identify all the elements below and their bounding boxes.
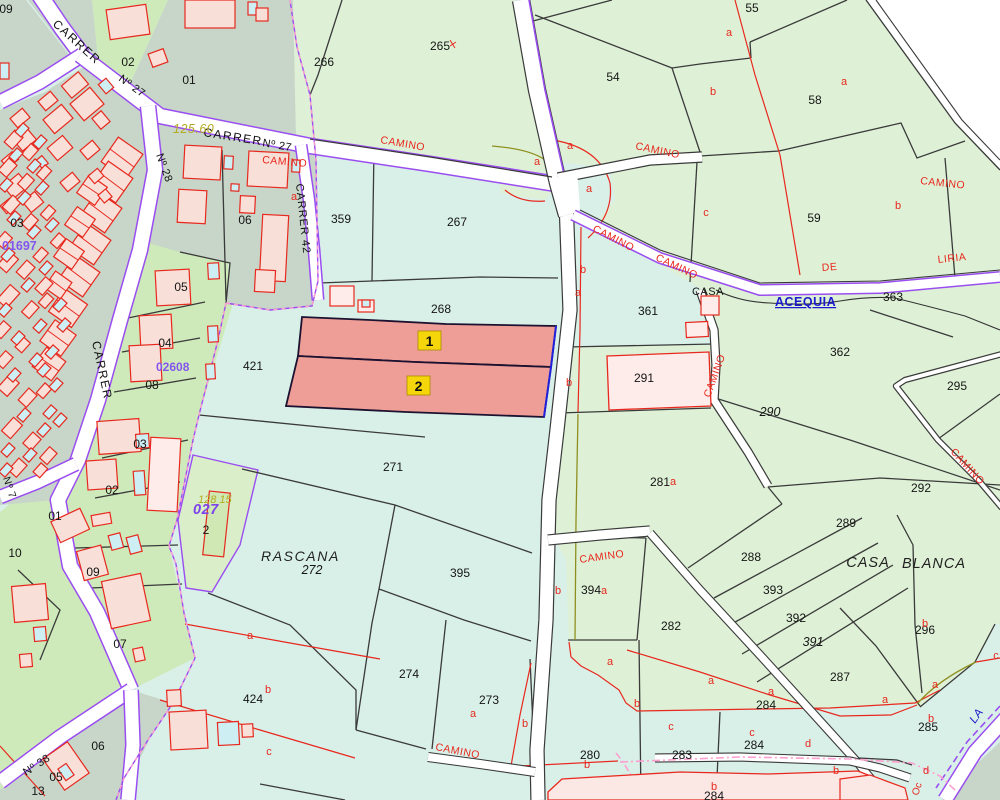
svg-text:290: 290 [759, 405, 781, 419]
svg-text:01: 01 [48, 509, 62, 523]
svg-text:CASA: CASA [846, 555, 890, 571]
svg-text:292: 292 [911, 481, 931, 495]
svg-text:b: b [584, 759, 590, 771]
svg-text:a: a [726, 27, 733, 39]
svg-text:c: c [266, 746, 272, 758]
svg-text:272: 272 [301, 563, 323, 577]
svg-text:03: 03 [10, 216, 24, 230]
svg-text:268: 268 [431, 302, 451, 316]
svg-text:b: b [634, 698, 640, 710]
svg-text:DE: DE [821, 261, 837, 274]
svg-text:b: b [522, 718, 528, 730]
svg-text:c: c [668, 721, 674, 733]
svg-text:09: 09 [86, 565, 100, 579]
svg-text:02: 02 [105, 483, 119, 497]
svg-text:288: 288 [741, 550, 761, 564]
svg-text:421: 421 [243, 359, 263, 373]
svg-text:07: 07 [113, 637, 127, 651]
svg-text:a: a [534, 156, 541, 168]
svg-text:55: 55 [745, 1, 759, 15]
svg-text:2: 2 [203, 523, 210, 537]
svg-text:424: 424 [243, 692, 263, 706]
svg-text:c: c [703, 207, 709, 219]
svg-text:284: 284 [756, 698, 776, 712]
svg-text:a: a [291, 191, 298, 203]
svg-text:a: a [841, 76, 848, 88]
svg-text:a: a [768, 686, 775, 698]
svg-text:361: 361 [638, 304, 658, 318]
svg-text:2: 2 [415, 378, 423, 394]
svg-text:b: b [555, 585, 561, 597]
svg-text:289: 289 [836, 516, 856, 530]
svg-text:291: 291 [634, 371, 654, 385]
svg-text:395: 395 [450, 566, 470, 580]
svg-text:b: b [710, 86, 716, 98]
svg-text:13: 13 [31, 784, 45, 798]
svg-text:a: a [932, 679, 939, 691]
svg-text:391: 391 [803, 635, 824, 649]
svg-text:265: 265 [430, 39, 450, 53]
svg-text:362: 362 [830, 345, 850, 359]
svg-text:271: 271 [383, 460, 403, 474]
svg-text:a: a [670, 476, 677, 488]
svg-text:b: b [928, 713, 934, 725]
svg-text:b: b [566, 377, 572, 389]
svg-text:282: 282 [661, 619, 681, 633]
svg-text:a: a [607, 656, 614, 668]
svg-text:02608: 02608 [156, 360, 190, 374]
svg-text:04: 04 [158, 336, 172, 350]
svg-text:284: 284 [744, 738, 764, 752]
svg-text:363: 363 [883, 290, 903, 304]
svg-text:58: 58 [808, 93, 822, 107]
svg-text:c: c [993, 650, 999, 662]
svg-text:08: 08 [145, 378, 159, 392]
svg-text:a: a [586, 183, 593, 195]
svg-text:274: 274 [399, 667, 419, 681]
svg-text:05: 05 [49, 770, 63, 784]
svg-text:b: b [922, 618, 928, 630]
svg-text:1: 1 [426, 333, 434, 349]
svg-text:125.60: 125.60 [173, 122, 214, 136]
svg-text:54: 54 [606, 70, 620, 84]
svg-text:394: 394 [581, 583, 601, 597]
svg-text:01697: 01697 [2, 239, 37, 253]
svg-text:a: a [470, 708, 477, 720]
svg-text:09: 09 [0, 2, 13, 16]
svg-text:266: 266 [314, 55, 334, 69]
svg-text:283: 283 [672, 748, 692, 762]
svg-text:359: 359 [331, 212, 351, 226]
svg-text:d: d [923, 765, 929, 777]
svg-text:b: b [833, 765, 839, 777]
svg-text:281: 281 [650, 475, 670, 489]
svg-text:ACEQUIA: ACEQUIA [775, 295, 836, 309]
svg-text:10: 10 [8, 546, 22, 560]
svg-text:a: a [567, 140, 574, 152]
svg-text:01: 01 [182, 73, 196, 87]
svg-text:RASCANA: RASCANA [261, 548, 340, 564]
svg-text:128 15: 128 15 [198, 494, 233, 506]
svg-text:273: 273 [479, 693, 499, 707]
svg-text:b: b [580, 264, 586, 276]
svg-text:CASA: CASA [692, 286, 724, 298]
svg-text:c: c [749, 727, 755, 739]
svg-text:393: 393 [763, 583, 783, 597]
svg-text:a: a [247, 630, 254, 642]
svg-text:03: 03 [133, 437, 147, 451]
svg-text:06: 06 [91, 739, 105, 753]
svg-text:a: a [708, 675, 715, 687]
svg-text:a: a [601, 585, 608, 597]
svg-text:287: 287 [830, 670, 850, 684]
svg-text:06: 06 [238, 213, 252, 227]
svg-text:BLANCA: BLANCA [902, 556, 966, 572]
svg-text:a: a [882, 694, 889, 706]
svg-text:a: a [575, 287, 582, 299]
svg-text:59: 59 [807, 211, 821, 225]
svg-text:b: b [895, 200, 901, 212]
svg-text:295: 295 [947, 379, 967, 393]
svg-text:b: b [265, 684, 271, 696]
svg-text:05: 05 [174, 280, 188, 294]
svg-text:02: 02 [121, 55, 135, 69]
svg-text:267: 267 [447, 215, 467, 229]
svg-text:d: d [805, 738, 811, 750]
svg-text:392: 392 [786, 611, 806, 625]
svg-text:b: b [711, 781, 717, 793]
